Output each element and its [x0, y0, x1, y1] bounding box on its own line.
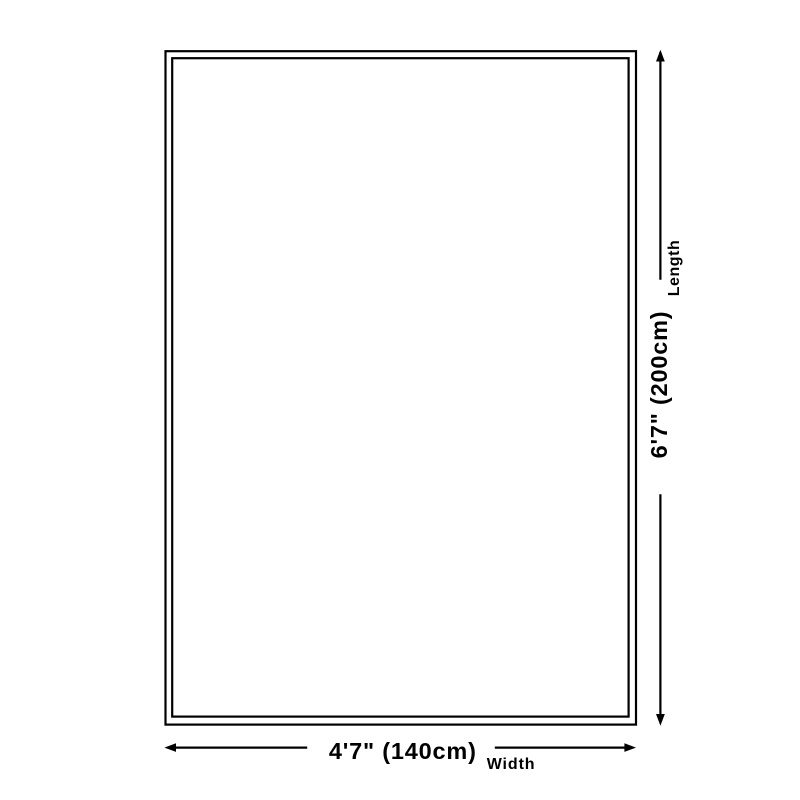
svg-text:6'7" (200cm): 6'7" (200cm) — [646, 311, 672, 459]
svg-text:Width: Width — [487, 756, 536, 773]
svg-text:Length: Length — [666, 240, 683, 297]
svg-text:4'7" (140cm): 4'7" (140cm) — [329, 738, 477, 764]
